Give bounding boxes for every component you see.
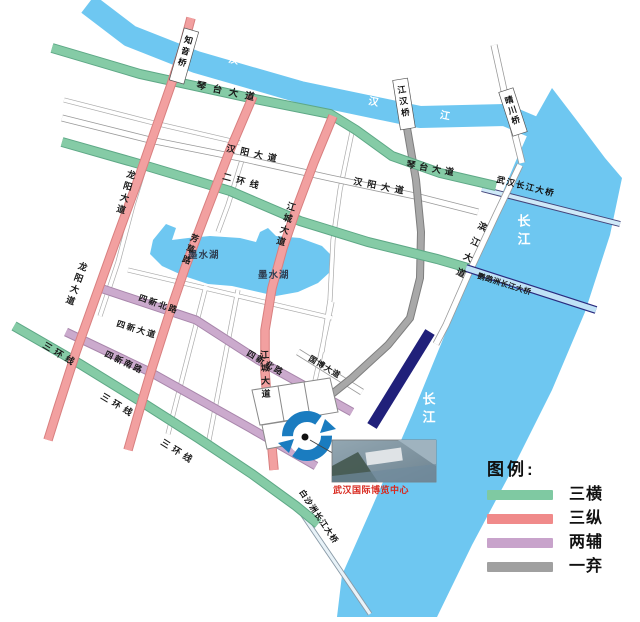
legend-label-green: 三横 xyxy=(569,489,603,500)
legend-swatch-purple xyxy=(487,538,553,548)
moshui-lake-label-2: 墨水湖 xyxy=(258,269,290,281)
expo-caption: 武汉国际博览中心 xyxy=(333,484,409,495)
legend-row-green: 三横 xyxy=(487,489,637,500)
hanyang-avenue-label-2: 汉阳大道 xyxy=(353,175,410,196)
legend-row-purple: 两辅 xyxy=(487,537,637,548)
yangtze-label-1: 长江 xyxy=(516,213,531,250)
legend-title: 图例: xyxy=(487,455,637,480)
legend-swatch-red xyxy=(487,514,553,524)
legend-label-gray: 一弃 xyxy=(569,561,603,572)
legend-swatch-gray xyxy=(487,562,553,572)
expo-location-dot xyxy=(302,434,309,441)
legend-row-red: 三纵 xyxy=(487,513,637,524)
guobo-avenue-label: 国博大道 xyxy=(307,353,343,380)
legend-label-purple: 两辅 xyxy=(569,537,603,548)
legend-row-gray: 一弃 xyxy=(487,561,637,572)
legend-swatch-green xyxy=(487,490,553,500)
sanhuan-road-label-3: 三环线 xyxy=(159,436,198,466)
longyang-avenue-label-2: 龙阳大道 xyxy=(63,259,90,309)
legend-label-red: 三纵 xyxy=(569,513,603,524)
sixin-avenue-label: 四新大道 xyxy=(115,318,158,340)
yangtze-label-2: 长江 xyxy=(421,391,436,428)
legend: 图例: 三横 三纵 两辅 一弃 xyxy=(487,455,637,585)
